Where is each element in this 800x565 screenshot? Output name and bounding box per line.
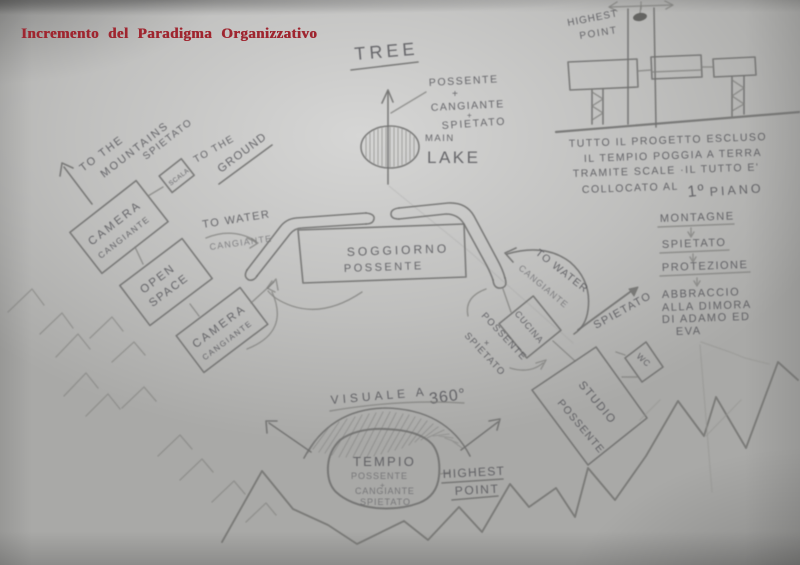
svg-text:POSSENTE: POSSENTE	[429, 73, 500, 89]
svg-text:+: +	[452, 89, 458, 100]
svg-text:EVA: EVA	[676, 325, 702, 338]
svg-text:LAKE: LAKE	[427, 148, 480, 167]
svg-text:SPIETATO: SPIETATO	[441, 116, 506, 132]
svg-text:TO WATER: TO WATER	[202, 208, 272, 231]
svg-text:VISUALE A: VISUALE A	[330, 385, 428, 407]
svg-text:MAIN: MAIN	[425, 133, 455, 144]
svg-text:TREE: TREE	[354, 38, 420, 64]
svg-text:WC: WC	[635, 351, 653, 369]
svg-text:SPIETATO: SPIETATO	[662, 237, 727, 251]
svg-text:PROTEZIONE: PROTEZIONE	[662, 259, 749, 274]
svg-text:DI ADAMO ED: DI ADAMO ED	[662, 311, 751, 326]
svg-text:HIGHEST: HIGHEST	[442, 464, 505, 481]
svg-text:1º: 1º	[687, 182, 706, 201]
svg-text:MONTAGNE: MONTAGNE	[660, 210, 735, 225]
svg-text:POSSENTE: POSSENTE	[344, 260, 424, 275]
svg-text:POINT: POINT	[579, 25, 619, 42]
svg-text:POINT: POINT	[454, 482, 499, 498]
svg-text:COLLOCATO AL: COLLOCATO AL	[582, 181, 679, 196]
svg-text:360°: 360°	[428, 386, 467, 408]
svg-text:SPIETATO: SPIETATO	[360, 497, 411, 507]
svg-text:SOGGIORNO: SOGGIORNO	[347, 241, 450, 259]
svg-text:SCALA: SCALA	[168, 167, 191, 187]
svg-text:TEMPIO: TEMPIO	[353, 454, 416, 469]
svg-text:CANGIANTE: CANGIANTE	[355, 486, 415, 496]
svg-text:POSSENTE: POSSENTE	[351, 471, 408, 481]
svg-text:PIANO: PIANO	[709, 181, 764, 199]
